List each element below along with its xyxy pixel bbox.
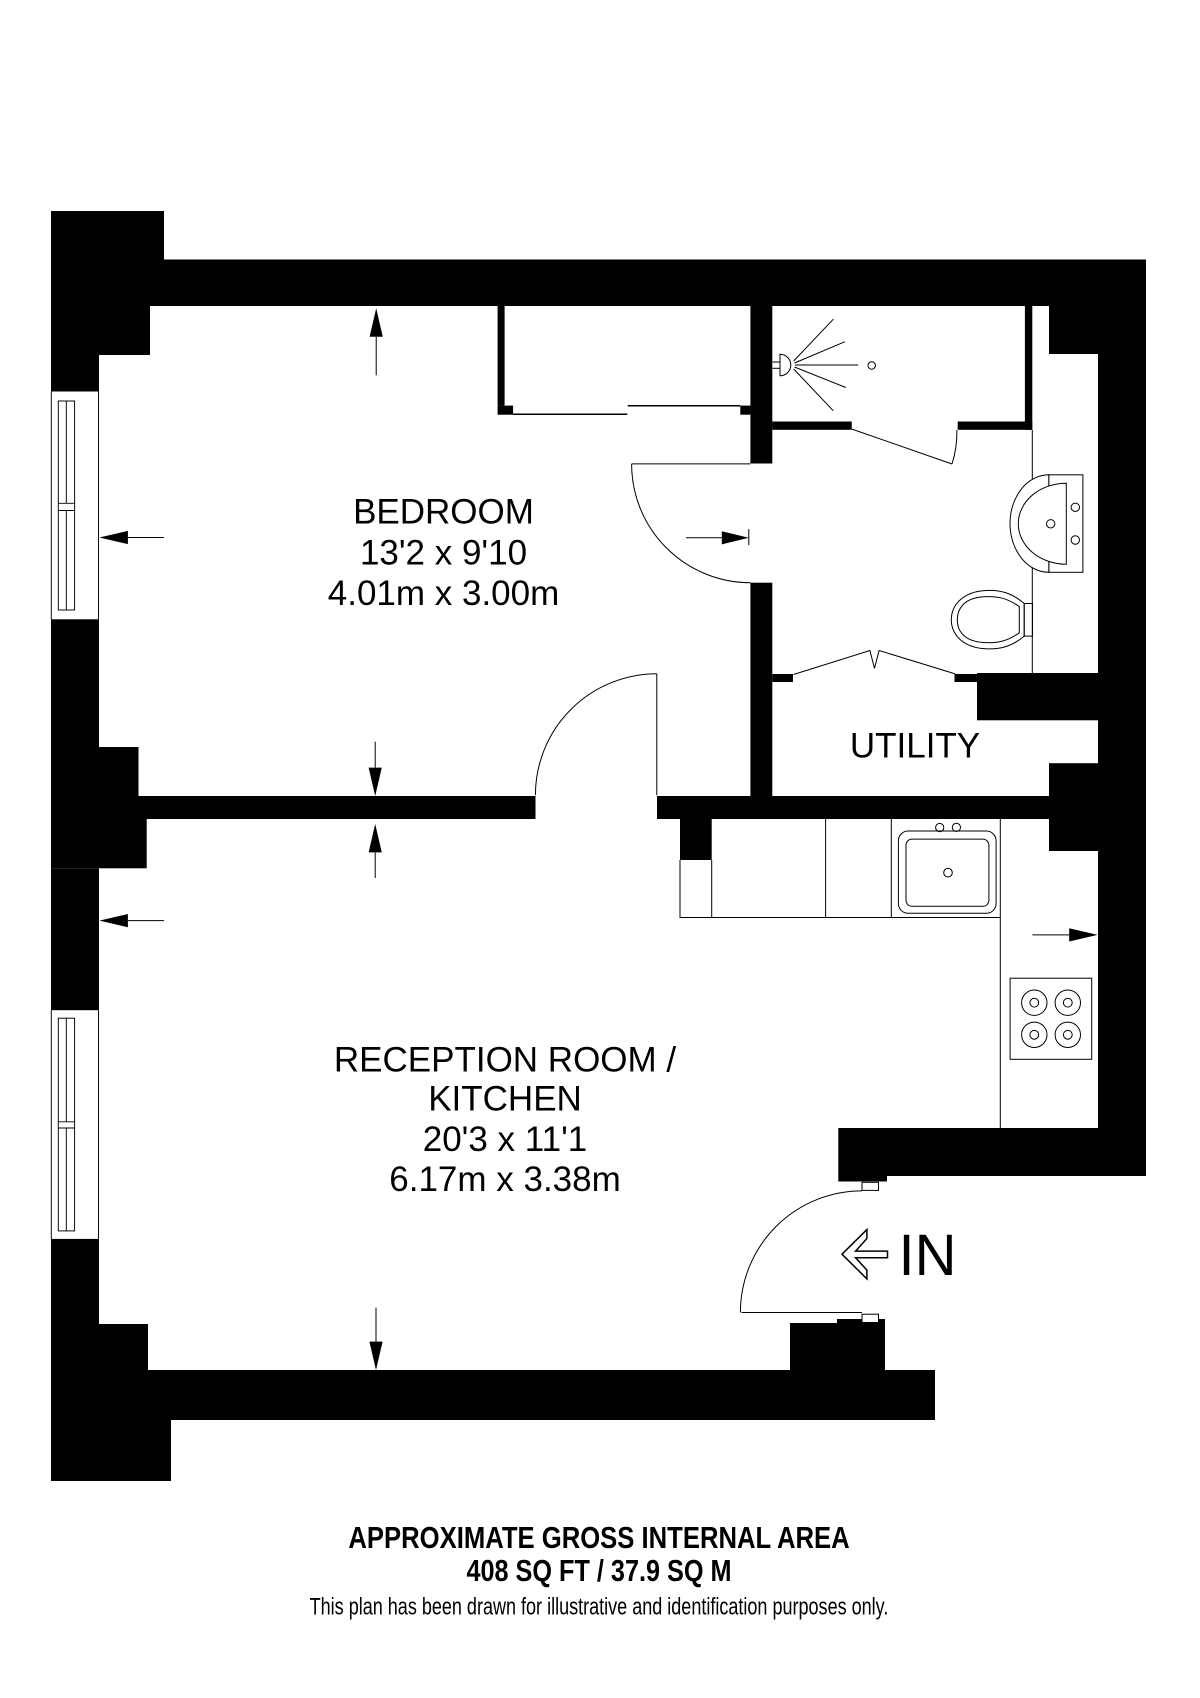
svg-text:BEDROOM: BEDROOM — [353, 492, 534, 531]
svg-text:13'2 x 9'10: 13'2 x 9'10 — [360, 534, 527, 573]
svg-text:6.17m x 3.38m: 6.17m x 3.38m — [389, 1160, 621, 1199]
svg-text:4.01m x 3.00m: 4.01m x 3.00m — [328, 574, 560, 613]
svg-text:KITCHEN: KITCHEN — [428, 1080, 582, 1119]
svg-text:APPROXIMATE GROSS INTERNAL ARE: APPROXIMATE GROSS INTERNAL AREA — [348, 1520, 849, 1555]
svg-text:408 SQ FT / 37.9 SQ M: 408 SQ FT / 37.9 SQ M — [466, 1553, 731, 1588]
svg-text:UTILITY: UTILITY — [850, 727, 980, 766]
svg-text:This plan has been drawn for i: This plan has been drawn for illustrativ… — [310, 1594, 889, 1621]
svg-text:20'3 x 11'1: 20'3 x 11'1 — [423, 1120, 588, 1159]
svg-text:RECEPTION ROOM /: RECEPTION ROOM / — [334, 1040, 677, 1079]
svg-text:IN: IN — [899, 1223, 957, 1288]
